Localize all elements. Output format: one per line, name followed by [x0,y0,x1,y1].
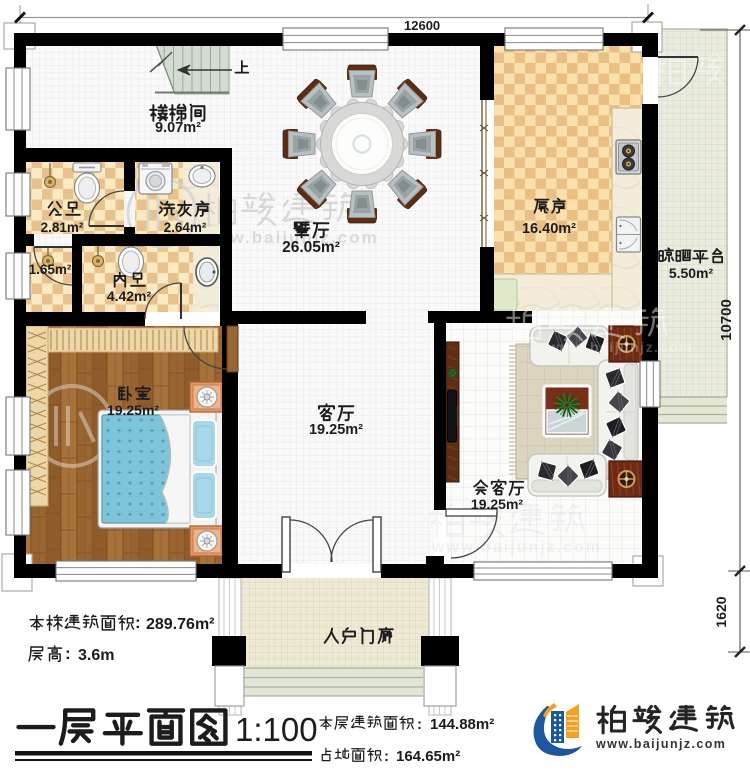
svg-text::: : [135,613,141,632]
svg-text:16.40m²: 16.40m² [522,221,576,237]
svg-text:10700: 10700 [718,299,735,341]
svg-text::: : [65,644,71,663]
svg-text:144.88m²: 144.88m² [430,716,494,733]
svg-text:www.baijunjz.com: www.baijunjz.com [547,339,693,355]
svg-text:12600: 12600 [404,18,440,33]
svg-text:5.50m²: 5.50m² [669,265,714,281]
svg-text::: : [384,748,389,765]
svg-text:1620: 1620 [713,596,729,627]
svg-text:19.25m²: 19.25m² [107,402,159,418]
svg-text:2.81m²: 2.81m² [41,220,84,235]
svg-text:19.25m²: 19.25m² [471,496,523,512]
svg-text:www.baijunjz.com: www.baijunjz.com [595,737,726,751]
svg-text:19.25m²: 19.25m² [309,422,363,438]
svg-text:www.baijunjz.com: www.baijunjz.com [431,539,602,556]
svg-text:3.6m: 3.6m [78,647,114,664]
svg-text:289.76m²: 289.76m² [146,616,215,633]
svg-text::: : [417,716,422,733]
svg-text:4.42m²: 4.42m² [107,288,152,304]
svg-text:1.65m²: 1.65m² [29,262,72,277]
svg-text:9.07m²: 9.07m² [155,120,201,136]
svg-text:164.65m²: 164.65m² [396,748,460,765]
svg-text:26.05m²: 26.05m² [282,239,340,256]
svg-text:2.64m²: 2.64m² [164,220,207,235]
svg-text:1:100: 1:100 [235,711,318,748]
